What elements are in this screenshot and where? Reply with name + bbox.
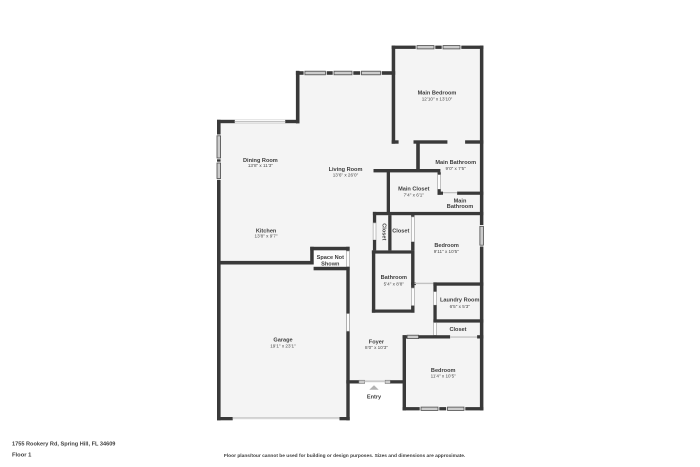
svg-text:13’8" x 11’3": 13’8" x 11’3" [248,163,274,168]
svg-text:Garage: Garage [273,338,292,344]
svg-text:1755 Rookery Rd, Spring Hill,: 1755 Rookery Rd, Spring Hill, FL 34609 [12,442,115,448]
svg-text:Laundry Room: Laundry Room [440,298,479,304]
svg-text:11’4" x 10’5": 11’4" x 10’5" [431,374,457,379]
svg-text:Closet: Closet [380,223,386,240]
svg-text:12’10" x 13’10": 12’10" x 13’10" [422,96,453,101]
svg-text:19’1" x 23’1": 19’1" x 23’1" [270,344,296,349]
svg-text:Closet: Closet [392,228,409,234]
svg-text:Space Not: Space Not [317,255,344,261]
svg-text:Entry: Entry [367,395,382,401]
svg-text:8’0" x 10’3": 8’0" x 10’3" [365,345,388,350]
svg-text:Floor plans/tour cannot be use: Floor plans/tour cannot be used for buil… [224,453,466,459]
svg-text:Shown: Shown [321,261,340,267]
svg-text:13’8" x 9’7": 13’8" x 9’7" [255,234,278,239]
svg-text:Bathroom: Bathroom [447,204,473,210]
svg-text:Bathroom: Bathroom [381,275,407,281]
svg-text:Closet: Closet [449,327,466,333]
svg-text:9’0" x 7’5": 9’0" x 7’5" [446,166,467,171]
svg-text:13’6" x 26’0": 13’6" x 26’0" [333,172,359,177]
svg-text:7’4" x 6’1": 7’4" x 6’1" [404,192,425,197]
svg-text:6’5" x 5’3": 6’5" x 5’3" [450,304,471,309]
svg-text:9’11" x 10’5": 9’11" x 10’5" [434,249,460,254]
svg-text:5’4" x 8’8": 5’4" x 8’8" [384,281,405,286]
svg-text:Floor 1: Floor 1 [12,453,32,459]
